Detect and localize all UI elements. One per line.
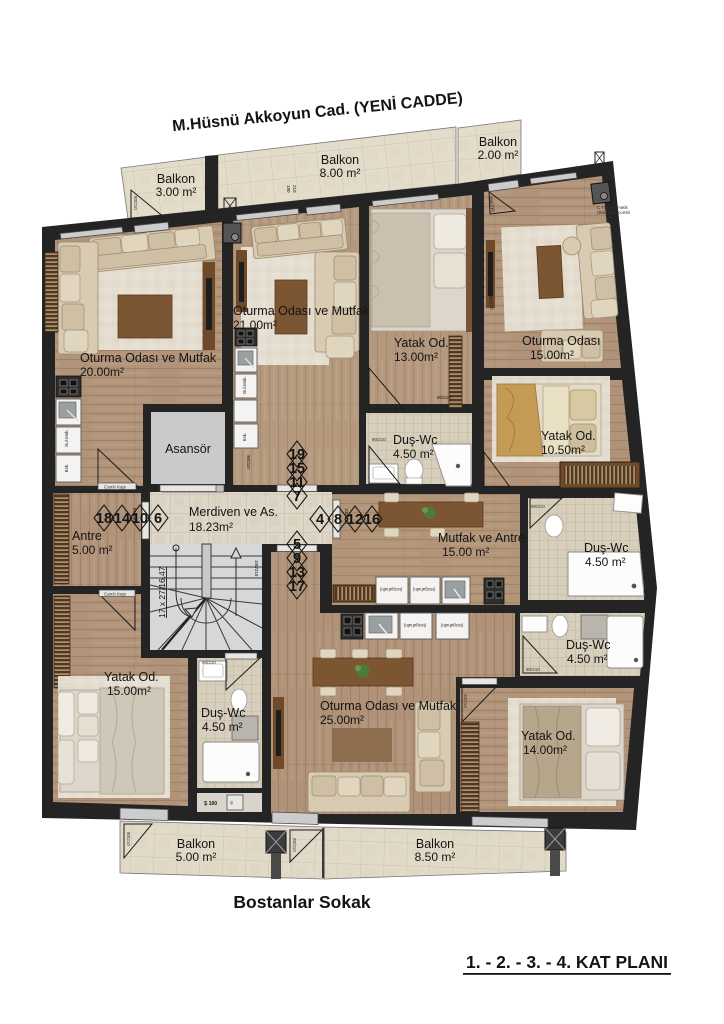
svg-text:Ş 100: Ş 100 [204, 801, 217, 807]
svg-text:4.50 m²: 4.50 m² [585, 555, 626, 569]
svg-text:100/210: 100/210 [344, 508, 349, 525]
svg-text:Balkon: Balkon [321, 153, 359, 167]
svg-text:Yatak Od.: Yatak Od. [394, 336, 449, 350]
svg-text:90/210: 90/210 [437, 395, 451, 400]
svg-text:Camlı Kapı: Camlı Kapı [104, 592, 126, 597]
svg-text:Oturma Odası: Oturma Odası [522, 334, 601, 348]
svg-text:Duş-Wc: Duş-Wc [201, 706, 245, 720]
svg-text:18.23m²: 18.23m² [189, 520, 233, 534]
svg-text:4.50 m²: 4.50 m² [202, 720, 243, 734]
svg-text:Asansör: Asansör [165, 442, 211, 456]
svg-text:4: 4 [316, 512, 324, 528]
svg-text:Bostanlar Sokak: Bostanlar Sokak [233, 892, 370, 912]
svg-text:Duş-Wc: Duş-Wc [584, 541, 628, 555]
svg-text:90/210: 90/210 [246, 455, 251, 469]
svg-text:Balkon: Balkon [479, 135, 517, 149]
svg-text:20.00m²: 20.00m² [80, 365, 124, 379]
svg-text:Oturma Odası ve Mutfak: Oturma Odası ve Mutfak [233, 304, 370, 318]
svg-text:Yatak Od.: Yatak Od. [541, 429, 596, 443]
svg-text:90/210: 90/210 [202, 660, 216, 665]
svg-text:2.00 m²: 2.00 m² [478, 148, 519, 162]
svg-text:4.50 m²: 4.50 m² [393, 447, 434, 461]
svg-text:14.00m²: 14.00m² [523, 743, 567, 757]
svg-text:Yatak Od.: Yatak Od. [104, 670, 159, 684]
svg-text:3.00 m²: 3.00 m² [156, 185, 197, 199]
svg-text:80/210: 80/210 [292, 838, 297, 852]
svg-text:(tezgahaltı): (tezgahaltı) [403, 623, 426, 628]
svg-text:18: 18 [96, 511, 112, 527]
svg-text:7: 7 [293, 489, 301, 505]
svg-text:13.00m²: 13.00m² [394, 350, 438, 364]
svg-text:Oturma Odası ve Mutfak: Oturma Odası ve Mutfak [320, 699, 457, 713]
svg-text:Merdiven ve As.: Merdiven ve As. [189, 505, 278, 519]
svg-text:80/210: 80/210 [133, 196, 138, 210]
svg-text:Balkon: Balkon [177, 837, 215, 851]
svg-text:Oturma Odası ve Mutfak: Oturma Odası ve Mutfak [80, 351, 217, 365]
svg-text:14: 14 [114, 511, 130, 527]
svg-text:180: 180 [286, 185, 291, 193]
svg-text:100/210: 100/210 [254, 560, 259, 577]
svg-text:Yatak Od.: Yatak Od. [521, 729, 576, 743]
svg-text:Mutfak ve Antre: Mutfak ve Antre [438, 531, 525, 545]
svg-text:Antre: Antre [72, 529, 102, 543]
svg-text:10.50m²: 10.50m² [541, 443, 585, 457]
svg-text:90/210: 90/210 [372, 437, 386, 442]
svg-text:(Bacasız) Kombi: (Bacasız) Kombi [597, 210, 630, 215]
svg-text:Duş-Wc: Duş-Wc [566, 638, 610, 652]
svg-text:25.00m²: 25.00m² [320, 713, 364, 727]
svg-text:15.00 m²: 15.00 m² [442, 545, 489, 559]
svg-text:6: 6 [154, 511, 162, 527]
svg-text:Bul.Mak.: Bul.Mak. [64, 429, 69, 447]
svg-text:17 x 27/16.47: 17 x 27/16.47 [157, 566, 167, 618]
svg-text:(tezgahaltı): (tezgahaltı) [379, 587, 402, 592]
svg-text:Camlı Kapı: Camlı Kapı [104, 485, 126, 490]
svg-text:16: 16 [364, 512, 380, 528]
svg-text:(tezgahaltı): (tezgahaltı) [440, 623, 463, 628]
svg-text:8: 8 [334, 512, 342, 528]
svg-text:Bsk.: Bsk. [64, 464, 69, 473]
svg-text:(tezgahaltı): (tezgahaltı) [412, 587, 435, 592]
svg-text:5.00 m²: 5.00 m² [176, 850, 217, 864]
svg-text:8.00 m²: 8.00 m² [320, 166, 361, 180]
svg-text:Balkon: Balkon [157, 172, 195, 186]
svg-text:90/210: 90/210 [463, 694, 468, 708]
svg-text:100/210: 100/210 [132, 507, 137, 524]
svg-text:5.00 m²: 5.00 m² [72, 543, 113, 557]
svg-text:Duş-Wc: Duş-Wc [393, 433, 437, 447]
svg-text:15.00m²: 15.00m² [530, 348, 574, 362]
svg-text:80/210: 80/210 [126, 832, 131, 846]
svg-text:90/210: 90/210 [531, 504, 545, 509]
svg-text:90/210: 90/210 [526, 667, 540, 672]
svg-text:8.50 m²: 8.50 m² [415, 850, 456, 864]
svg-text:4.50 m²: 4.50 m² [567, 652, 608, 666]
svg-text:1. - 2. - 3. - 4. KAT PLANI: 1. - 2. - 3. - 4. KAT PLANI [466, 952, 668, 972]
svg-text:21.00m²: 21.00m² [233, 318, 277, 332]
svg-text:Balkon: Balkon [416, 837, 454, 851]
svg-text:Bsk.: Bsk. [242, 433, 247, 442]
svg-text:Bul.Mak.: Bul.Mak. [242, 376, 247, 394]
svg-text:17: 17 [289, 579, 305, 595]
svg-text:210: 210 [292, 185, 297, 193]
svg-text:15.00m²: 15.00m² [107, 684, 151, 698]
svg-text:Ş: Ş [230, 800, 233, 805]
